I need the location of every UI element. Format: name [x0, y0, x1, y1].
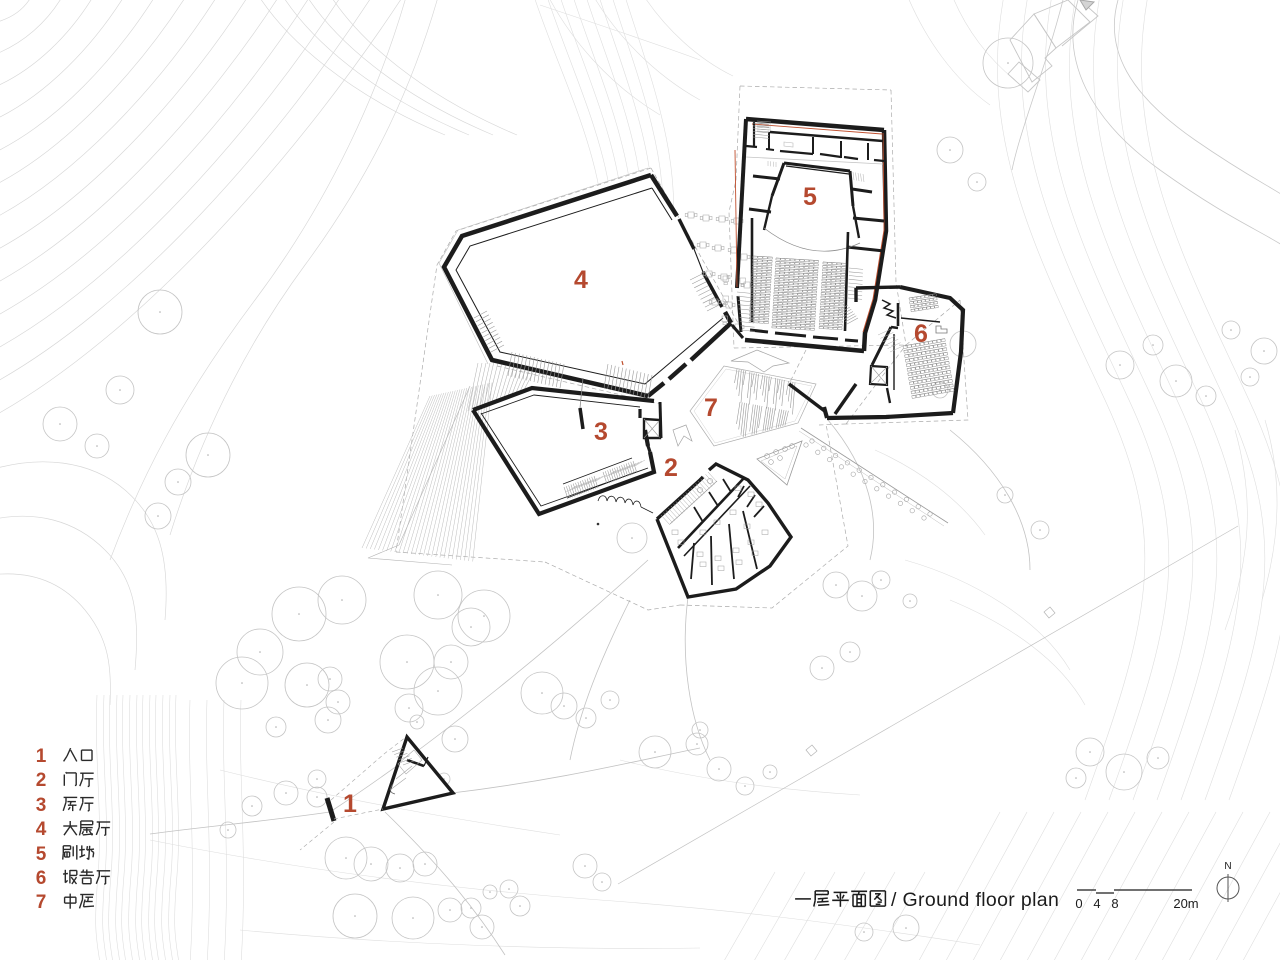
- svg-text:5: 5: [803, 183, 817, 211]
- svg-text:7: 7: [704, 394, 718, 422]
- svg-text:2: 2: [664, 454, 678, 482]
- svg-text:5: 5: [36, 844, 47, 865]
- svg-text:20m: 20m: [1173, 896, 1198, 911]
- svg-text:6: 6: [914, 320, 928, 348]
- svg-text:8: 8: [1111, 896, 1118, 911]
- svg-text:3: 3: [36, 795, 47, 816]
- svg-text:3: 3: [594, 418, 608, 446]
- svg-text:1: 1: [36, 746, 47, 767]
- svg-text:7: 7: [36, 892, 47, 913]
- svg-text:N: N: [1224, 861, 1231, 872]
- svg-text:1: 1: [343, 790, 357, 818]
- svg-text:4: 4: [1093, 896, 1100, 911]
- svg-text:2: 2: [36, 770, 47, 791]
- svg-text:4: 4: [36, 819, 47, 840]
- svg-text:6: 6: [36, 868, 47, 889]
- svg-text:/ Ground floor plan: / Ground floor plan: [891, 889, 1059, 911]
- svg-text:0: 0: [1075, 896, 1082, 911]
- svg-text:4: 4: [574, 266, 588, 294]
